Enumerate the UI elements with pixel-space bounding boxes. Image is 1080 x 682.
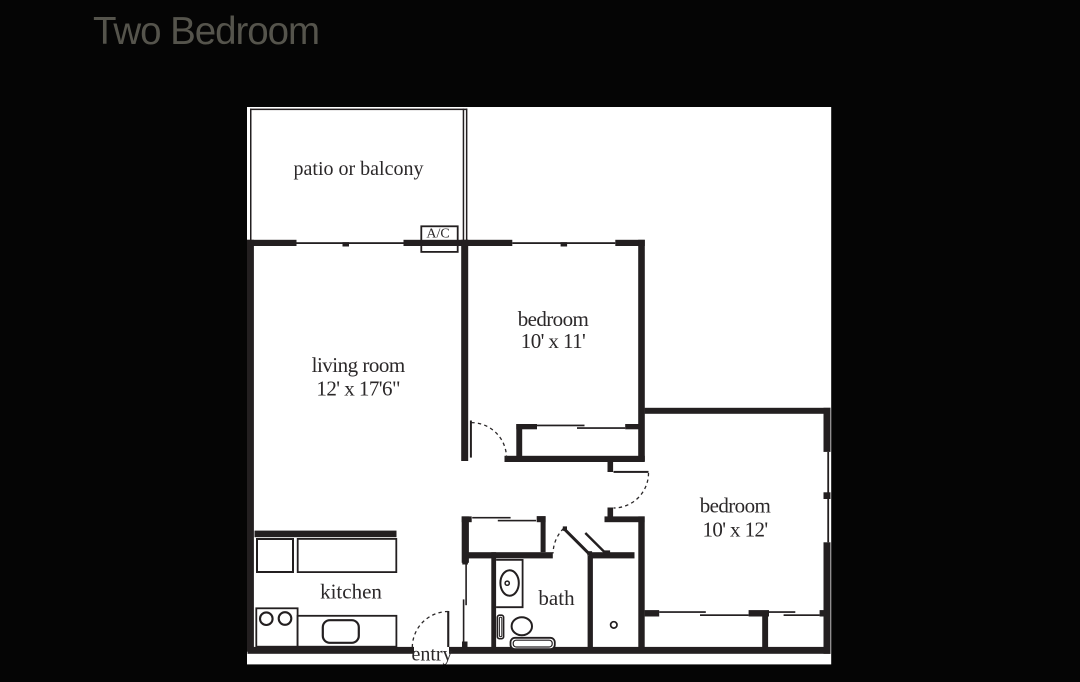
svg-text:10' x 12': 10' x 12' — [703, 518, 768, 542]
svg-text:living room: living room — [312, 353, 405, 377]
svg-text:patio or balcony: patio or balcony — [294, 158, 424, 180]
svg-text:12' x 17'6": 12' x 17'6" — [316, 377, 400, 401]
svg-text:10' x 11': 10' x 11' — [521, 329, 585, 353]
svg-text:A/C: A/C — [426, 227, 449, 242]
svg-text:kitchen: kitchen — [320, 580, 382, 604]
svg-text:bedroom: bedroom — [700, 494, 771, 518]
svg-text:entry: entry — [411, 644, 452, 666]
svg-text:bedroom: bedroom — [518, 307, 589, 331]
svg-text:Two Bedroom: Two Bedroom — [93, 10, 319, 53]
svg-text:bath: bath — [538, 586, 575, 610]
